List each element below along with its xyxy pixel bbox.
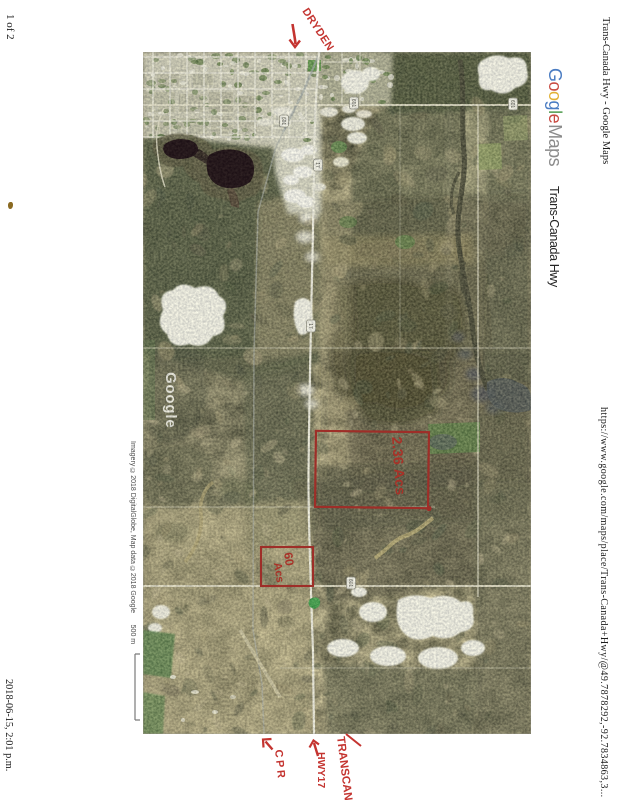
svg-text:CPR: CPR: [272, 749, 287, 781]
svg-text:TRANSCANADA: TRANSCANADA: [334, 736, 357, 800]
svg-text:DRYDEN: DRYDEN: [299, 6, 335, 53]
svg-text:HWY17: HWY17: [315, 752, 327, 788]
svg-text:2.36 Acs: 2.36 Acs: [389, 436, 409, 496]
svg-text:Acs: Acs: [271, 562, 286, 584]
